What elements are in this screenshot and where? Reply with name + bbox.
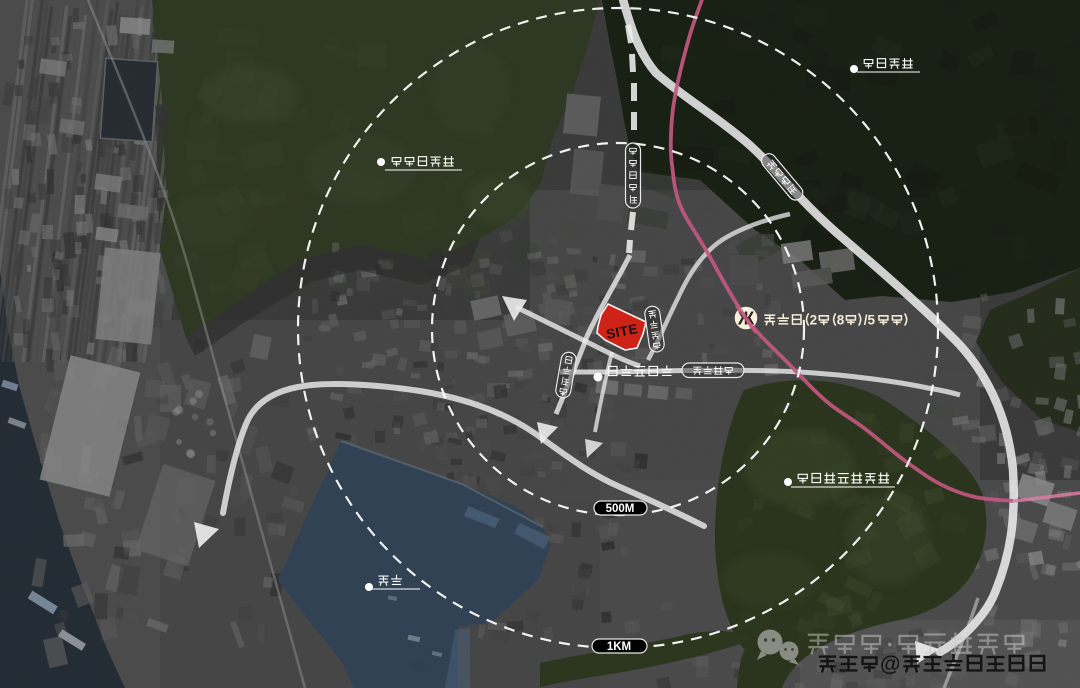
svg-text:1KM: 1KM	[607, 641, 631, 653]
svg-text:2: 2	[810, 313, 818, 328]
svg-text:500M: 500M	[606, 503, 635, 515]
svg-text:/5: /5	[864, 313, 876, 328]
svg-text:@: @	[880, 653, 900, 676]
svg-text:8: 8	[837, 313, 845, 328]
